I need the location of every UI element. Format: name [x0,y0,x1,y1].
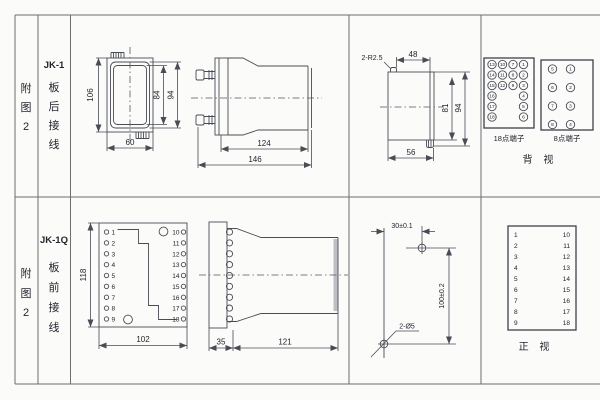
fig-char: 图 [21,287,32,300]
dim-60: 60 [126,138,135,147]
terminal-number: 18 [489,115,495,121]
wiring-char: 接 [49,119,60,132]
terminal-number: 6 [112,284,116,291]
terminal-number: 3 [514,254,518,261]
drilling-plan: 30±0.1 100±0.2 2-Ø5 [371,223,456,358]
terminal-dot [181,284,185,288]
terminal-number: 13 [172,262,180,269]
dim-81: 81 [441,103,450,112]
terminal-number: 2 [522,73,525,79]
row2-figure-label: 附 图 2 [21,266,32,319]
terminal-dot [104,317,108,321]
terminal-number: 18 [563,320,571,327]
terminal-number: 17 [489,104,495,110]
terminal-dot [181,295,185,299]
terminal-dot [181,317,185,321]
terminal-number: 18 [172,317,180,324]
wiring-char: 接 [49,301,60,314]
dim-146: 146 [248,155,262,164]
terminal-number: 8 [112,306,116,313]
dim-30: 30±0.1 [391,223,412,230]
terminal-number: 11 [173,240,180,247]
terminal-dot [104,295,108,299]
dim-124: 124 [257,139,271,148]
terminal-number: 9 [112,317,116,324]
dim-56: 56 [407,148,416,157]
dim-121: 121 [278,338,292,347]
terminal-dot [104,273,108,277]
top-notch [391,68,397,73]
terminal-number: 5 [551,67,554,73]
drawing-canvas: 附 图 2 JK-1 板 后 接 线 106 84 94 60 [0,0,600,400]
dim-48: 48 [409,50,418,59]
screw-head-top [196,70,204,80]
jk1q-side-view: 35 121 [199,222,348,351]
terminal-dot [104,306,108,310]
terminal-number: 15 [489,83,495,89]
dim-extension [397,57,431,72]
row2-model-label: JK-1Q 板 前 接 线 [40,235,68,334]
terminal18-caption: 18点端子 [494,133,525,143]
terminal-number: 15 [563,287,571,294]
terminal-number: 17 [563,309,571,316]
terminal-number: 4 [112,262,116,269]
cutout-outline [388,72,434,140]
wiring-char: 线 [49,137,60,151]
body-outline [228,58,308,135]
wiring-char: 线 [49,320,60,334]
terminal-dot [181,230,185,234]
terminal-number: 10 [563,232,571,239]
terminal-number: 2 [514,243,518,250]
terminal-number: 5 [514,276,518,283]
fig-char: 附 [21,81,32,95]
dim-106: 106 [86,88,95,102]
wiring-char: 前 [49,280,60,294]
terminal-number: 4 [514,265,518,272]
dim-extension [88,223,99,327]
dim-35: 35 [217,338,226,347]
bottom-slot [427,140,434,148]
terminal-dot [181,306,185,310]
fig-char: 附 [21,266,32,280]
wiring-char: 后 [49,100,60,113]
terminal-dot [104,284,108,288]
terminal-number: 17 [172,306,180,313]
terminal-number: 16 [489,94,495,100]
hole-callout: 2-Ø5 [399,324,415,331]
screw-head-bottom [196,115,204,125]
top-stud-hatch [111,53,124,59]
terminal-number: 8 [514,309,518,316]
terminal-number: 1 [112,230,116,237]
terminal-number: 11 [500,73,505,79]
terminal-number: 7 [512,62,515,68]
jk1-front-view: 106 84 94 60 [86,47,181,151]
jk1-side-view: 124 146 [191,58,322,168]
terminal-number: 12 [500,83,506,89]
terminal-number: 15 [172,284,180,291]
dim-extension [96,58,107,132]
front-view: 1 2 3 4 5 6 7 8 9 10 11 12 13 14 15 16 1… [508,226,576,353]
row1-figure-label: 附 图 2 [21,81,32,133]
panel-cutout-view: 2-R2.5 48 81 94 56 [361,50,470,161]
terminal8-caption: 8点端子 [554,133,581,143]
terminal-number: 7 [551,104,554,110]
radius-callout: 2-R2.5 [361,55,382,62]
wiring-char: 板 [49,260,60,274]
bottom-stud-hatch [136,132,149,139]
terminal-number: 13 [489,62,495,68]
terminal-dot [104,230,108,234]
terminal-number: 7 [514,298,518,305]
terminal-number: 14 [489,73,495,79]
terminal-number: 2 [112,240,116,247]
table-grid [15,15,600,384]
terminal-number: 4 [522,94,525,100]
terminal-number: 4 [569,122,572,128]
terminal-number: 9 [512,83,515,89]
dim-94: 94 [167,90,176,99]
terminal-dot [181,273,185,277]
terminal-number: 1 [514,232,518,239]
terminal-dot [181,241,185,245]
terminal-number: 14 [172,273,180,280]
flange-plate [215,58,228,135]
case-step-outline [118,230,177,320]
dim-118: 118 [79,268,88,281]
dim-94: 94 [454,103,463,112]
model-name: JK-1Q [40,235,68,246]
terminal-number: 16 [563,298,571,305]
fig-char: 图 [21,101,32,114]
terminal-number: 5 [522,104,525,110]
terminal-number: 8 [512,73,515,79]
terminal-number: 3 [112,251,116,258]
terminal-number: 1 [569,67,572,73]
terminal-number: 6 [514,287,518,294]
terminal-number: 3 [569,104,572,110]
terminal-number: 5 [112,273,116,280]
figure-sheet: 附 图 2 JK-1 板 后 接 线 106 84 94 60 [0,0,600,400]
dim-84: 84 [153,90,162,99]
terminal-number: 10 [500,62,506,68]
radius-leader [384,62,391,69]
dim-extension [209,314,338,352]
terminal-dot [104,262,108,266]
terminal-number: 8 [551,122,554,128]
terminal-number: 14 [563,276,571,283]
terminal-dot [181,252,185,256]
wiring-char: 板 [49,80,60,94]
jk1q-front-view: 1 2 3 4 5 6 7 8 9 10 11 12 13 14 15 16 1… [79,223,187,349]
row1-model-label: JK-1 板 后 接 线 [44,60,65,151]
terminal-dot [104,241,108,245]
terminal-number: 12 [172,251,180,258]
front-view-label: 正 视 [519,340,554,353]
model-name: JK-1 [44,60,65,71]
terminal-dot [181,262,185,266]
grid-line [15,15,600,384]
rear-view: 13 14 15 16 17 18 10 11 12 7 8 9 1 2 3 4… [484,58,593,166]
terminal-number: 6 [522,115,525,121]
dim-extension [434,140,471,146]
mounting-hole [159,227,168,236]
dim-100: 100±0.2 [439,283,446,308]
terminal-number: 13 [563,265,571,272]
fig-char: 2 [23,307,29,319]
terminal-number: 3 [522,83,525,89]
hole-centerlines [406,242,456,254]
terminal-number: 1 [522,62,525,68]
hole-centerlines [378,338,456,350]
terminal-dot [104,252,108,256]
terminal-number: 6 [551,85,554,91]
screw-shaft-top [204,70,215,80]
screw-shaft-bottom [204,115,215,125]
terminal-number: 10 [172,230,180,237]
fig-char: 2 [23,121,29,133]
terminal-number: 16 [172,295,180,302]
terminal-number: 11 [563,243,570,250]
mounting-hole [124,315,133,324]
terminal-number: 9 [514,320,518,327]
terminal-number: 7 [112,295,116,302]
dim-102: 102 [136,335,150,344]
terminal-number: 2 [569,85,572,91]
terminal-number: 12 [563,254,571,261]
rear-view-label: 背 视 [523,153,558,166]
